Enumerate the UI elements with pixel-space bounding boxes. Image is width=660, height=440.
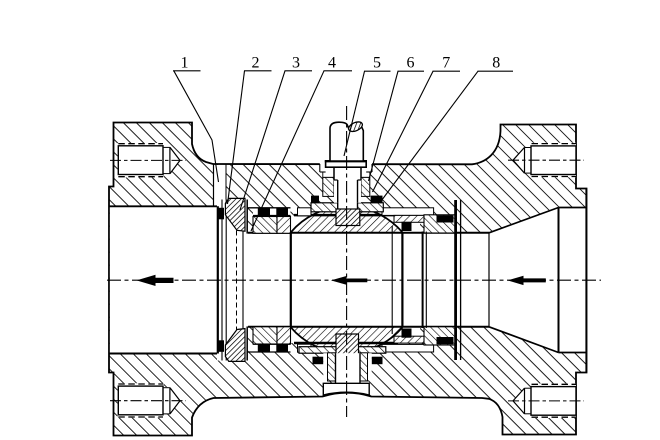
- svg-text:1: 1: [181, 55, 189, 72]
- svg-text:2: 2: [252, 55, 260, 72]
- svg-text:3: 3: [292, 55, 300, 72]
- svg-text:6: 6: [407, 55, 415, 72]
- svg-text:7: 7: [442, 55, 450, 72]
- svg-text:8: 8: [492, 55, 500, 72]
- svg-text:5: 5: [373, 55, 381, 72]
- svg-text:4: 4: [328, 55, 336, 72]
